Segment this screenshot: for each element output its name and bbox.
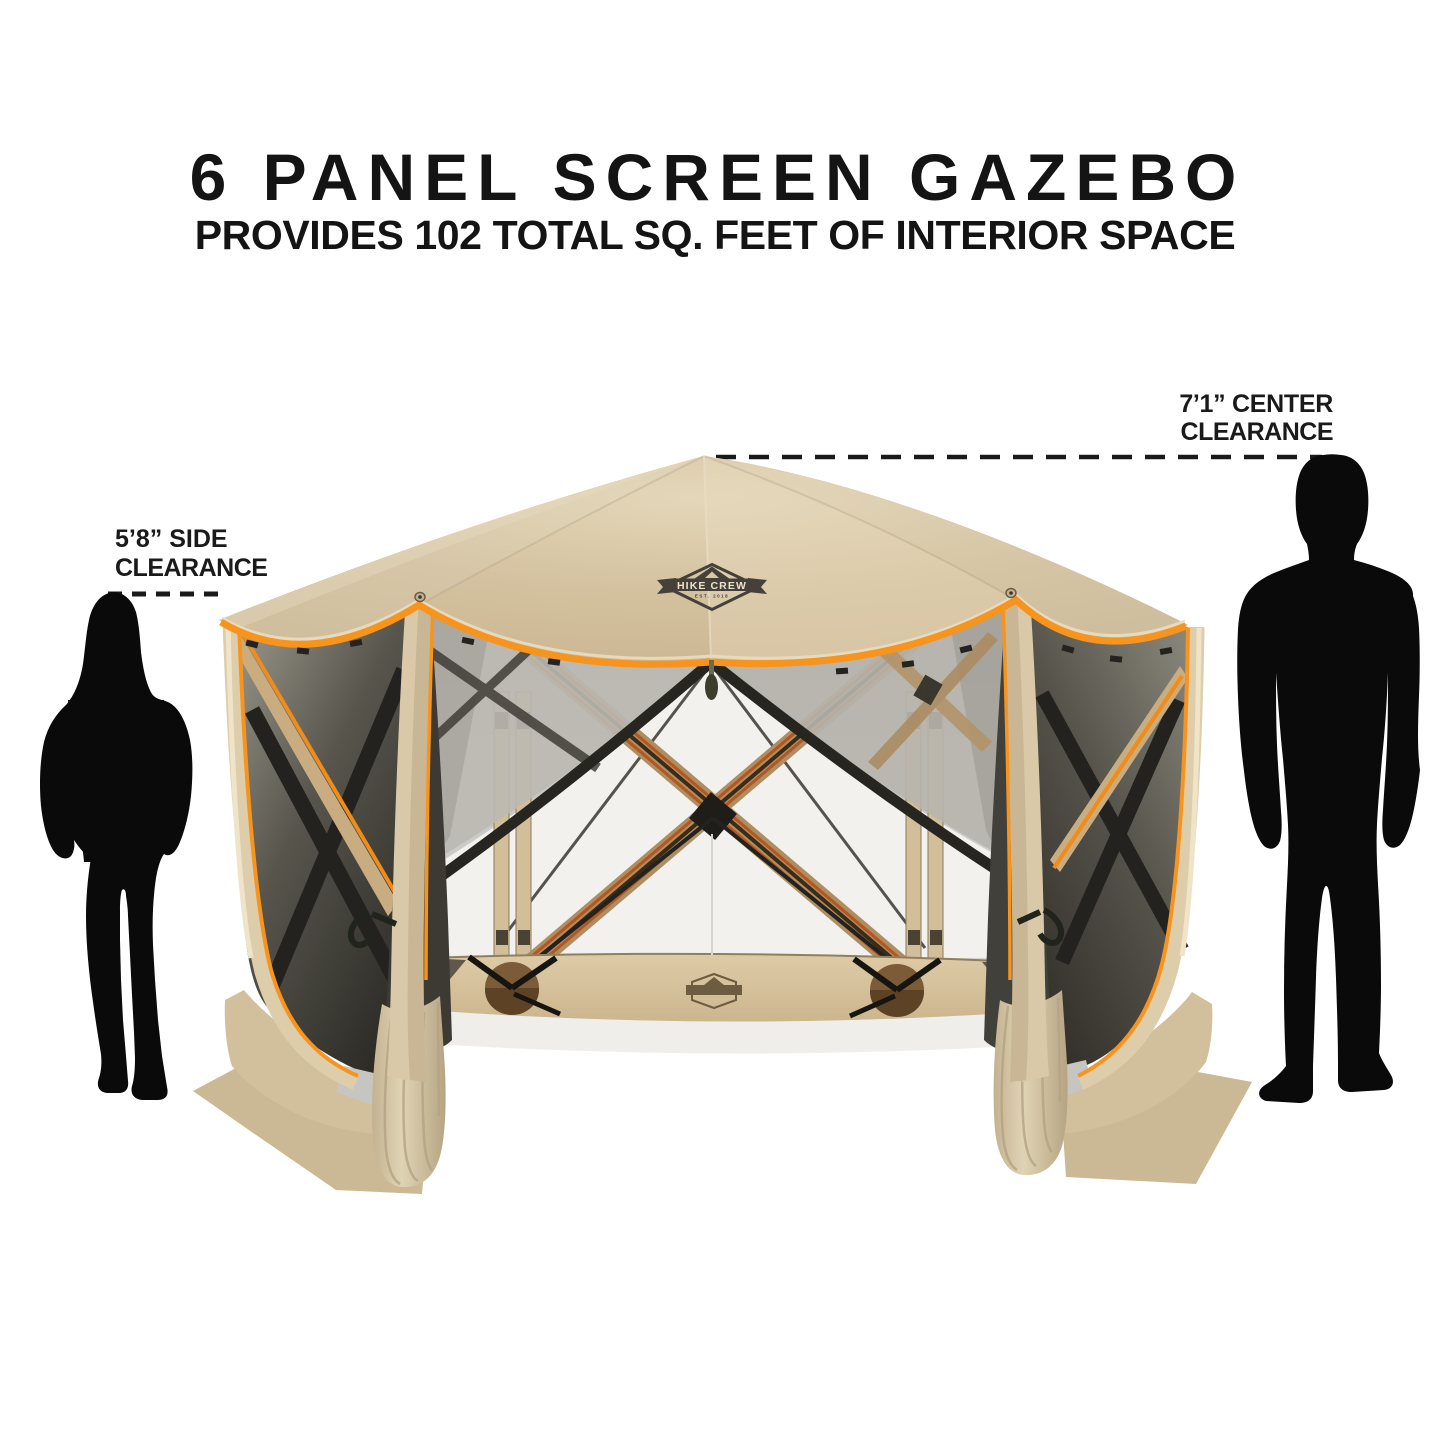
svg-text:EST. 2018: EST. 2018	[695, 594, 729, 599]
svg-text:5’8” SIDE: 5’8” SIDE	[115, 525, 228, 553]
svg-text:CLEARANCE: CLEARANCE	[115, 554, 267, 582]
svg-text:CLEARANCE: CLEARANCE	[1181, 418, 1333, 446]
svg-text:6 PANEL SCREEN GAZEBO: 6 PANEL SCREEN GAZEBO	[190, 140, 1246, 214]
svg-text:HIKE CREW: HIKE CREW	[677, 580, 747, 592]
svg-text:PROVIDES 102 TOTAL SQ. FEET OF: PROVIDES 102 TOTAL SQ. FEET OF INTERIOR …	[195, 212, 1236, 258]
svg-text:7’1” CENTER: 7’1” CENTER	[1179, 390, 1333, 418]
